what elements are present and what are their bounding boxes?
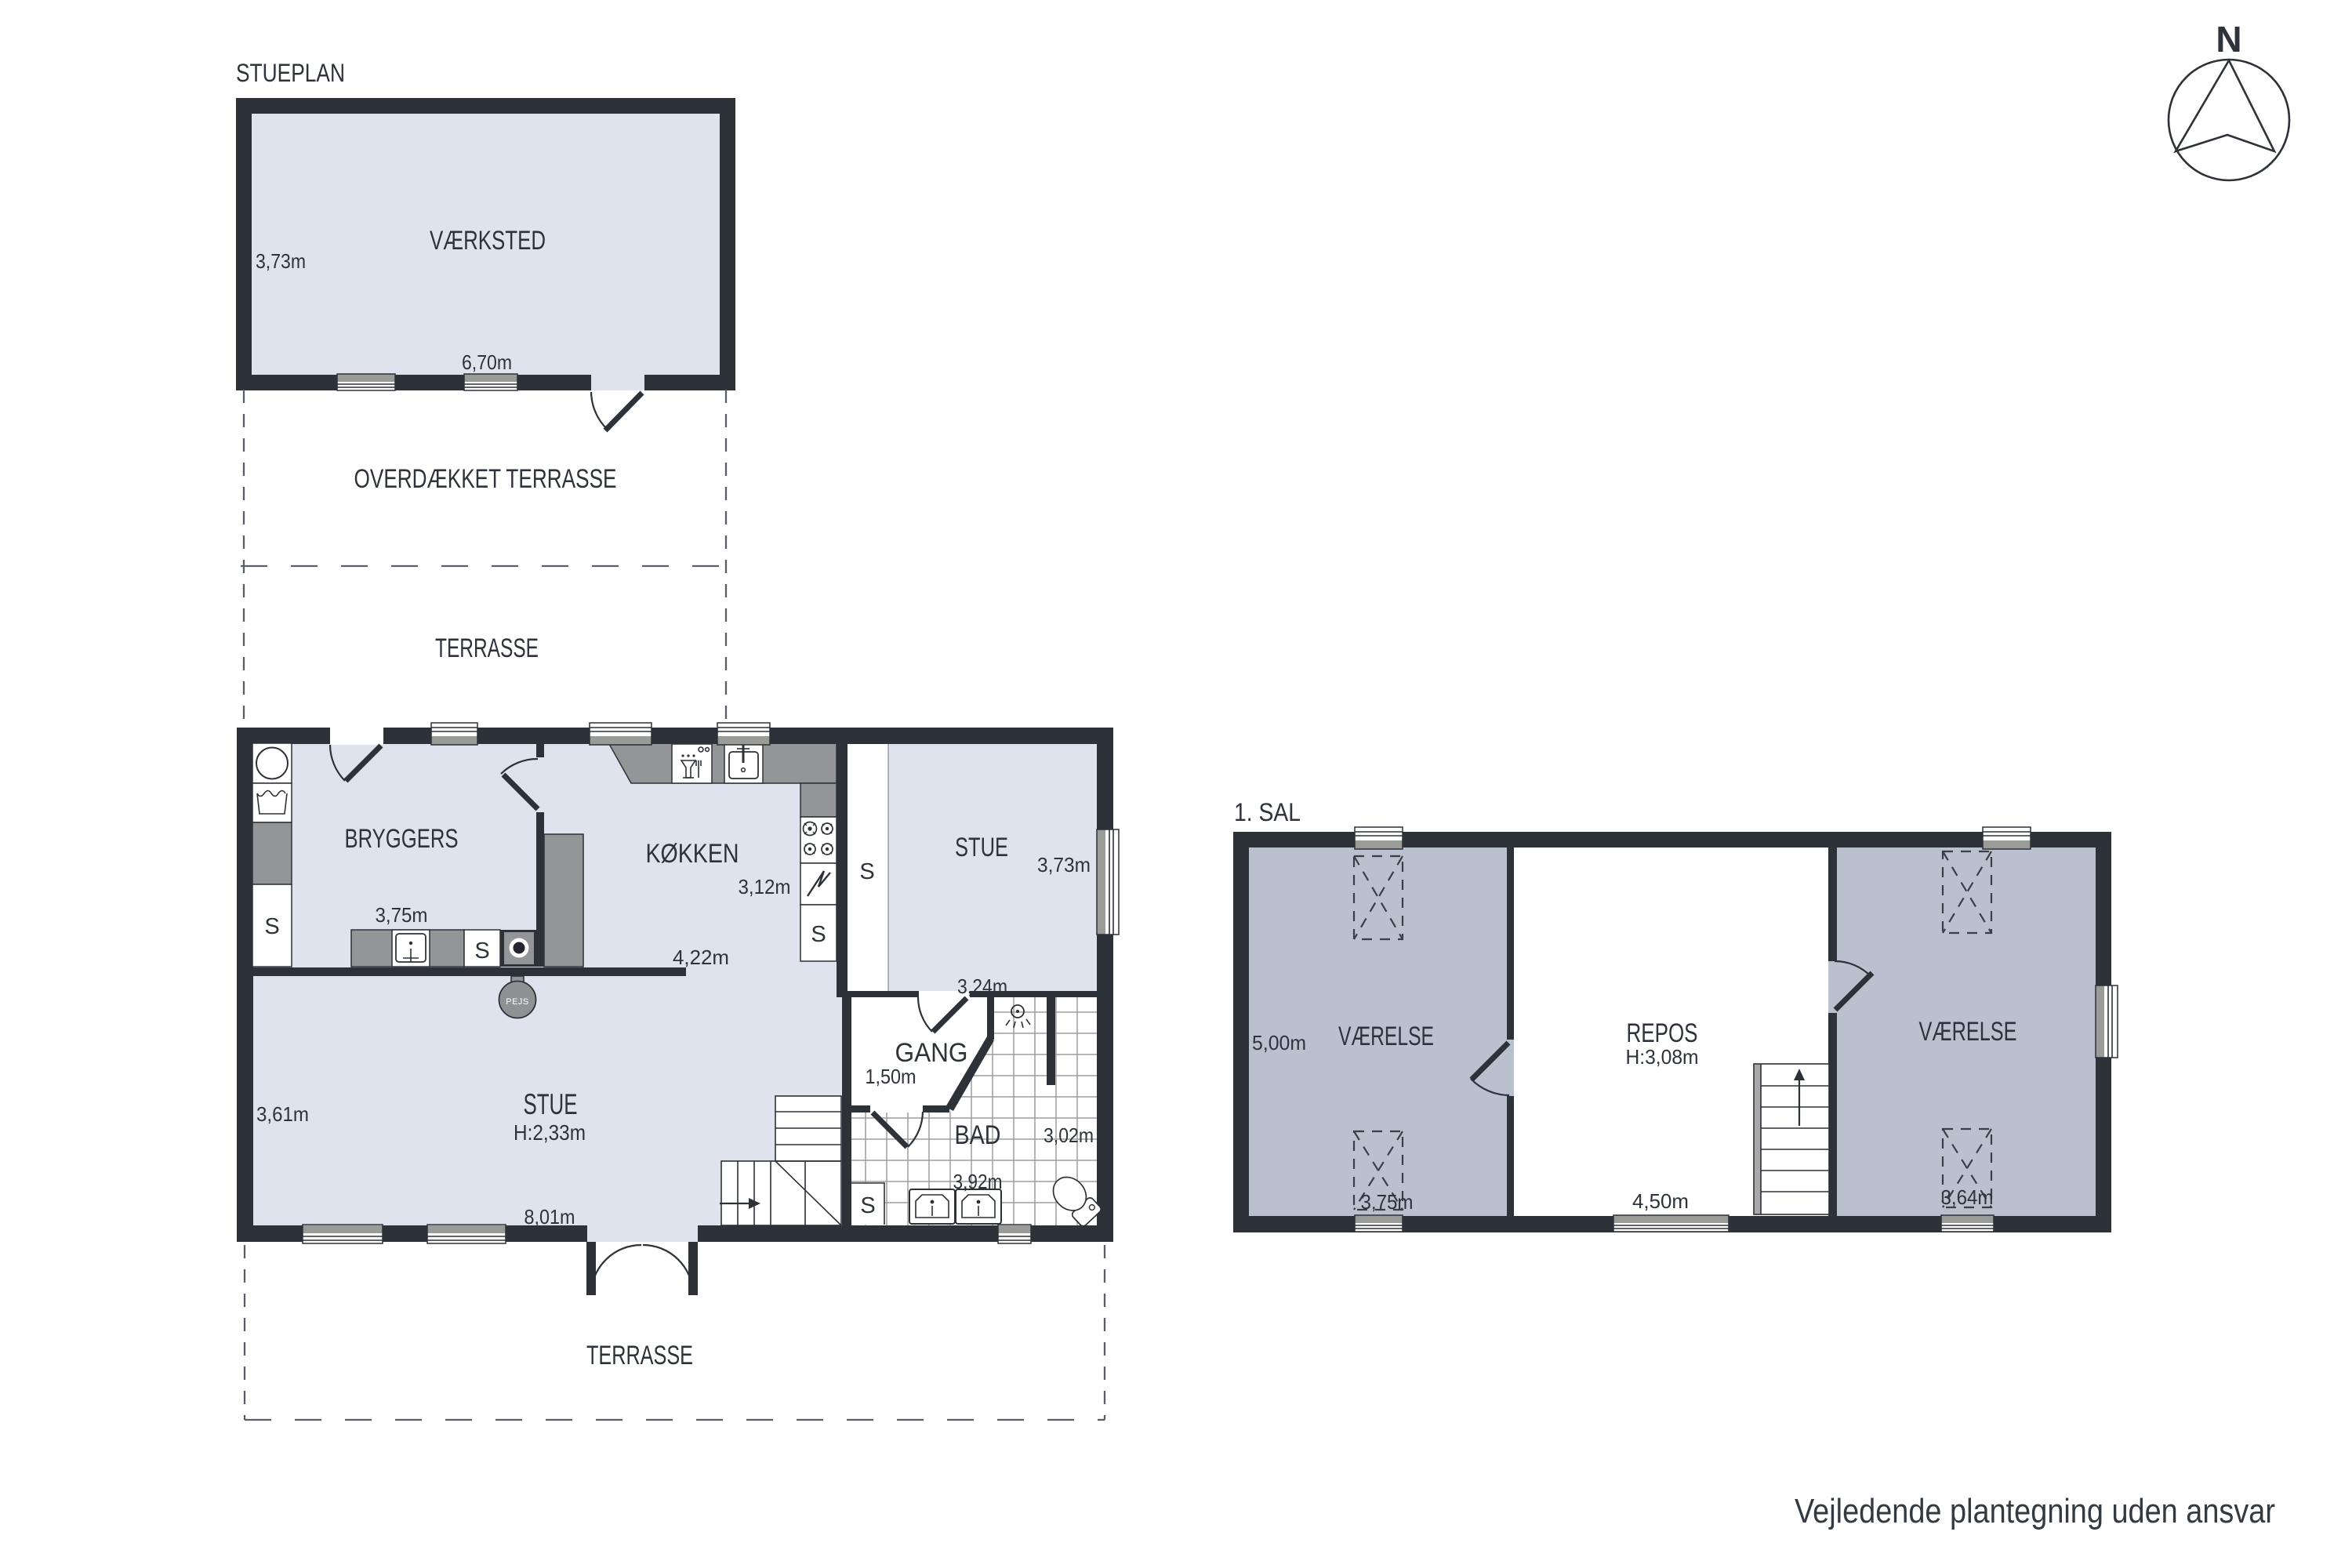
svg-text:BRYGGERS: BRYGGERS — [345, 824, 459, 854]
svg-text:8,01m: 8,01m — [524, 1205, 575, 1229]
svg-text:KØKKEN: KØKKEN — [646, 839, 739, 869]
svg-text:S: S — [860, 1193, 875, 1218]
svg-text:S: S — [811, 922, 826, 947]
svg-text:3,61m: 3,61m — [256, 1102, 309, 1126]
svg-text:3,75m: 3,75m — [376, 903, 428, 927]
svg-text:VÆRKSTED: VÆRKSTED — [430, 226, 546, 256]
svg-text:H:2,33m: H:2,33m — [514, 1120, 586, 1145]
svg-text:VÆRELSE: VÆRELSE — [1919, 1017, 2017, 1047]
svg-text:S: S — [264, 914, 279, 939]
svg-text:PEJS: PEJS — [506, 997, 529, 1007]
svg-text:3,02m: 3,02m — [1044, 1123, 1094, 1147]
svg-text:4,50m: 4,50m — [1632, 1189, 1689, 1213]
svg-text:S: S — [859, 859, 874, 884]
svg-text:3,12m: 3,12m — [739, 875, 791, 898]
svg-text:5,00m: 5,00m — [1252, 1031, 1306, 1054]
svg-text:TERRASSE: TERRASSE — [435, 633, 539, 663]
svg-text:3,75m: 3,75m — [1361, 1190, 1414, 1214]
svg-text:3,73m: 3,73m — [256, 249, 306, 273]
svg-text:3,73m: 3,73m — [1037, 853, 1091, 877]
svg-text:TERRASSE: TERRASSE — [586, 1341, 693, 1370]
svg-text:GANG: GANG — [895, 1038, 968, 1068]
svg-text:S: S — [474, 938, 489, 964]
svg-text:N: N — [2216, 19, 2241, 60]
svg-text:BAD: BAD — [955, 1120, 1001, 1150]
svg-text:4,22m: 4,22m — [673, 946, 729, 969]
svg-text:3,92m: 3,92m — [953, 1170, 1003, 1193]
svg-text:H:3,08m: H:3,08m — [1626, 1045, 1699, 1069]
svg-text:3,64m: 3,64m — [1941, 1185, 1994, 1209]
svg-text:REPOS: REPOS — [1627, 1018, 1698, 1048]
svg-text:STUE: STUE — [955, 833, 1008, 862]
svg-text:Vejledende plantegning uden an: Vejledende plantegning uden ansvar — [1795, 1492, 2275, 1530]
svg-text:STUEPLAN: STUEPLAN — [236, 59, 345, 87]
svg-text:STUE: STUE — [524, 1088, 578, 1120]
svg-text:OVERDÆKKET TERRASSE: OVERDÆKKET TERRASSE — [354, 464, 617, 494]
svg-text:1,50m: 1,50m — [866, 1065, 916, 1088]
svg-text:6,70m: 6,70m — [462, 350, 512, 374]
svg-text:VÆRELSE: VÆRELSE — [1338, 1022, 1434, 1051]
svg-text:1. SAL: 1. SAL — [1234, 798, 1301, 826]
svg-text:3,24m: 3,24m — [957, 975, 1007, 998]
